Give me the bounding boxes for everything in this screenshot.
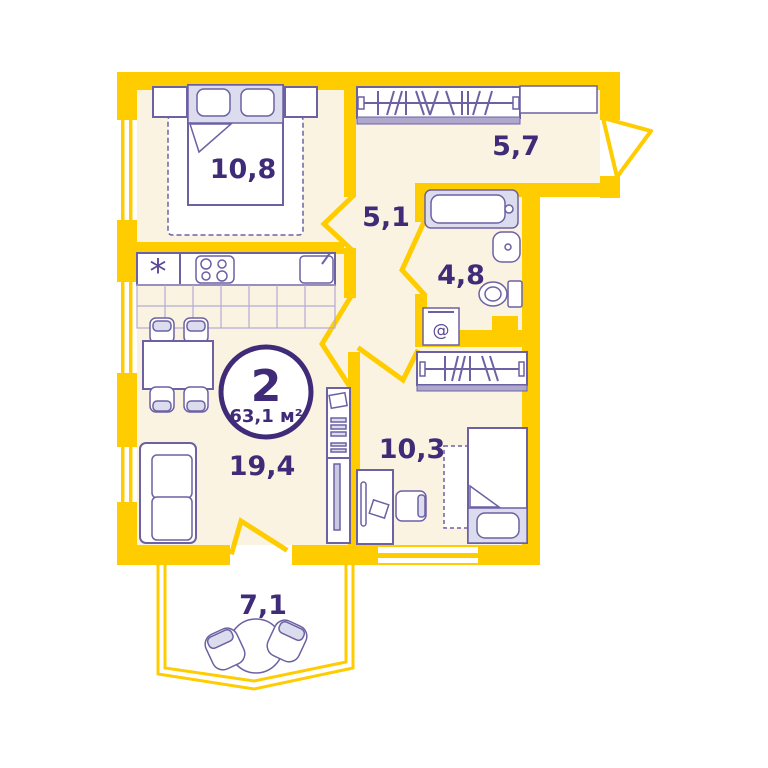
room-label-bedroom: 10,8 xyxy=(210,154,277,185)
wall-bath-block xyxy=(492,316,518,330)
room-label-bathroom: 4,8 xyxy=(437,260,485,291)
hall-shelf xyxy=(520,86,597,113)
nightstand-right xyxy=(285,87,317,117)
area-badge: 2 63,1 м² xyxy=(221,347,311,437)
wall-kitchen-east xyxy=(344,248,356,298)
fridge-asterisk-icon: * xyxy=(150,252,167,292)
washer-at-icon: @ xyxy=(433,321,450,341)
coat-rack xyxy=(357,87,520,124)
washing-machine-icon: @ xyxy=(423,308,459,345)
pillow-left xyxy=(197,89,230,116)
room-corridor: 5,1 xyxy=(362,202,410,233)
desk-chair xyxy=(396,491,426,521)
room-label-balcony: 7,1 xyxy=(239,590,287,621)
badge-total-area: 63,1 м² xyxy=(229,406,302,427)
wall-right-upper-a xyxy=(600,72,620,120)
washbasin-icon xyxy=(493,232,520,262)
room-bedroom: 10,8 xyxy=(153,85,317,235)
monitor-icon xyxy=(361,482,366,526)
room-label-hallway: 5,7 xyxy=(492,131,540,162)
window-bedroom xyxy=(117,120,137,220)
tv-stand xyxy=(327,388,350,543)
window-kids-room xyxy=(378,547,478,563)
pillow xyxy=(477,513,519,538)
dining-table xyxy=(143,341,213,389)
floor-plan-page: 10,8 * xyxy=(0,0,768,768)
dining-chair xyxy=(184,318,208,343)
nightstand-left xyxy=(153,87,187,117)
balcony: 7,1 xyxy=(158,565,353,689)
sofa xyxy=(140,443,196,543)
blanket xyxy=(444,446,471,528)
entrance-door xyxy=(600,118,651,177)
badge-rooms-count: 2 xyxy=(251,361,282,412)
room-label-corridor: 5,1 xyxy=(362,202,410,233)
toilet-icon xyxy=(479,281,522,307)
wall-bedroom-east xyxy=(344,72,356,197)
room-label-living: 19,4 xyxy=(229,451,296,482)
dining-chair xyxy=(184,387,208,412)
decor-item xyxy=(329,393,347,409)
bathtub-icon xyxy=(425,190,518,228)
floor-plan: 10,8 * xyxy=(0,0,768,768)
pillow-right xyxy=(241,89,274,116)
kitchen-sink-icon xyxy=(300,253,333,283)
stove-icon xyxy=(196,256,234,283)
window-living xyxy=(117,447,137,502)
dining-chair xyxy=(150,387,174,412)
window-kitchen xyxy=(117,282,137,373)
tv-icon xyxy=(334,464,340,530)
desk xyxy=(357,470,393,544)
room-label-kids: 10,3 xyxy=(379,434,446,465)
dining-chair xyxy=(150,318,174,343)
wardrobe xyxy=(417,352,527,391)
wall-step xyxy=(540,183,620,197)
